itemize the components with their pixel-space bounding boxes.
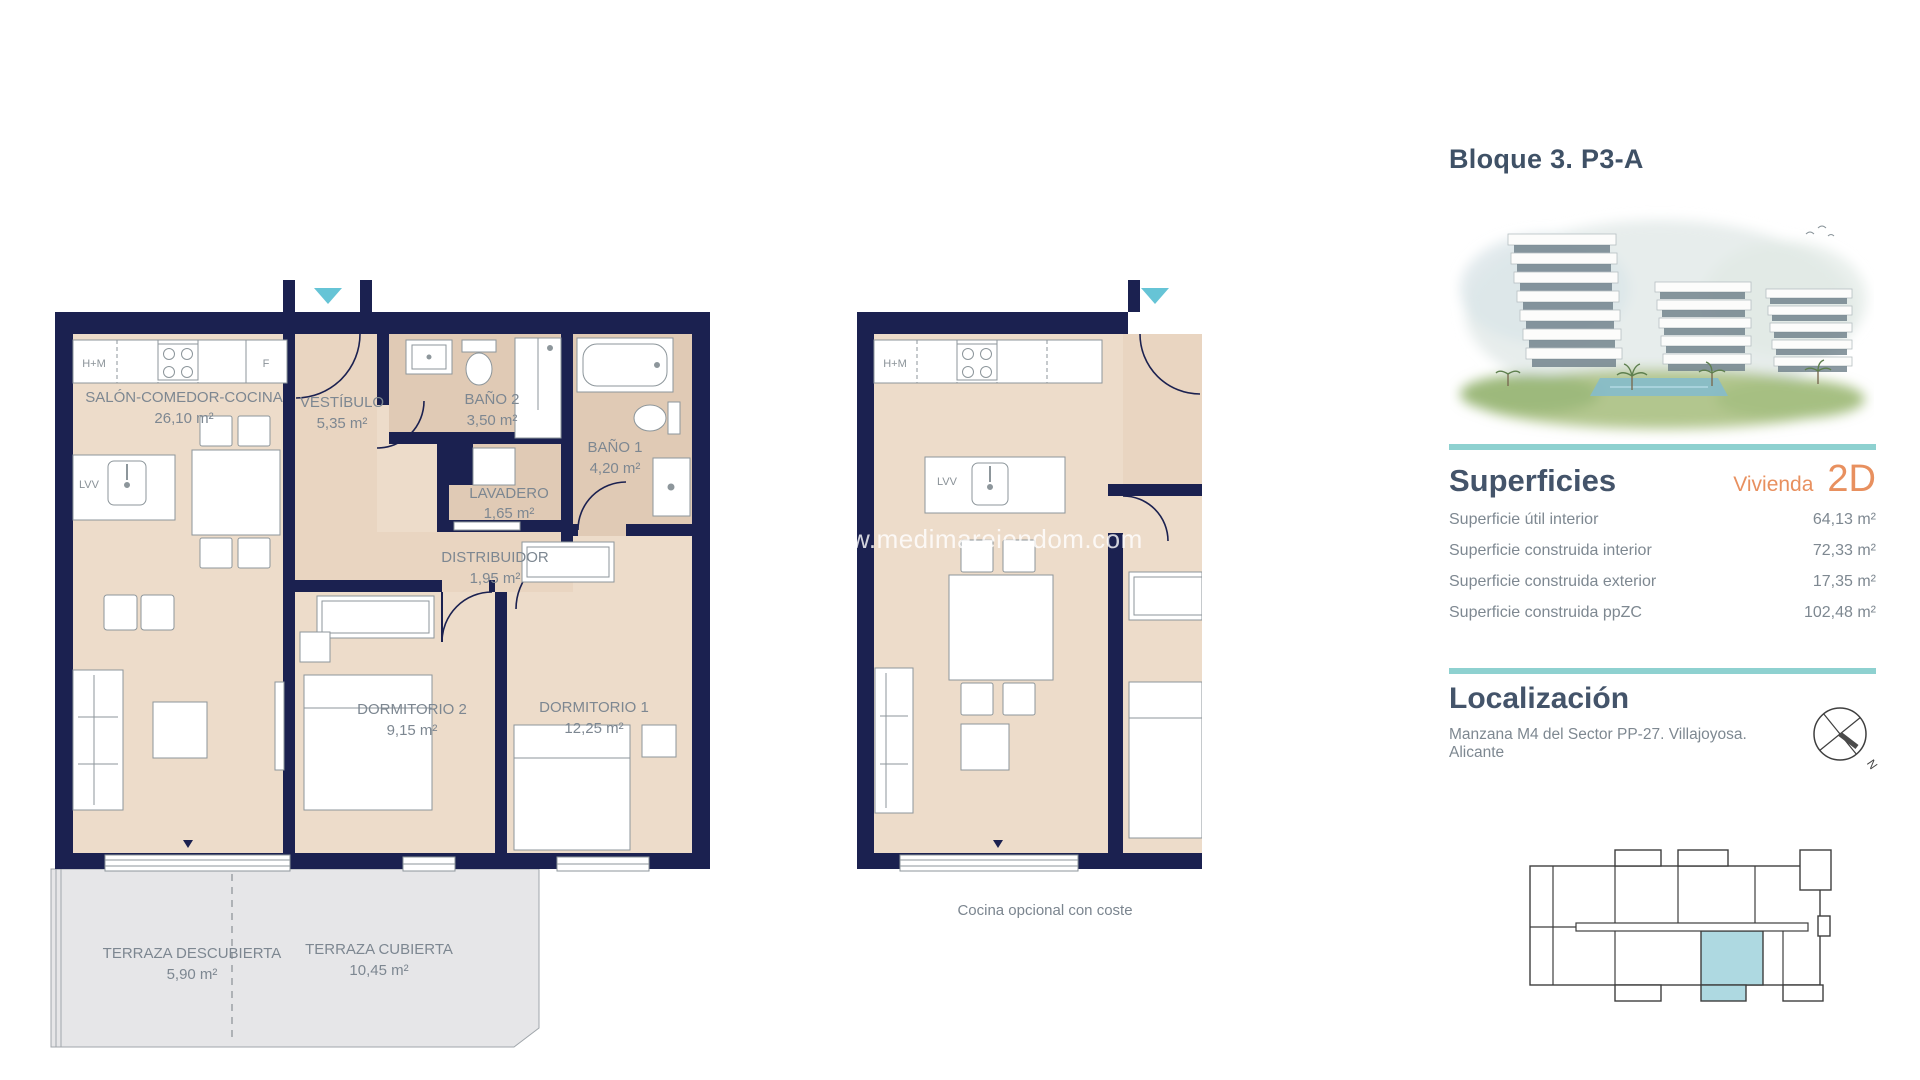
kitchen-label-hm: H+M xyxy=(883,358,907,370)
room-area-dorm1: 12,25 m² xyxy=(564,720,623,737)
row-value: 102,48 m² xyxy=(1804,604,1876,622)
room-label-distribuidor: DISTRIBUIDOR xyxy=(441,549,549,566)
entrance-arrow-icon xyxy=(1141,288,1169,304)
room-area-dorm2: 9,15 m² xyxy=(387,722,438,739)
row-label: Superficie construida interior xyxy=(1449,542,1652,560)
kitchen-label-lvv: LVV xyxy=(79,479,100,491)
row-label: Superficie construida exterior xyxy=(1449,573,1656,591)
block-title: Bloque 3. P3-A xyxy=(1449,144,1644,175)
table-row: Superficie construida ppZC 102,48 m² xyxy=(1449,597,1876,628)
room-area-bano1: 4,20 m² xyxy=(590,460,641,477)
compass-north-label: N xyxy=(1864,757,1880,772)
building-right xyxy=(1766,289,1852,372)
row-value: 17,35 m² xyxy=(1813,573,1876,591)
localizacion-address: Manzana M4 del Sector PP-27. Villajoyosa… xyxy=(1449,726,1804,762)
localizacion-heading: Localización xyxy=(1449,682,1629,716)
entrance-arrow-icon xyxy=(314,288,342,304)
building-center xyxy=(1655,282,1751,371)
row-label: Superficie construida ppZC xyxy=(1449,604,1642,622)
room-area-terraza-cub: 10,45 m² xyxy=(349,962,408,979)
room-label-terraza-cub: TERRAZA CUBIERTA xyxy=(305,941,453,958)
superficies-table: Superficie útil interior 64,13 m² Superf… xyxy=(1449,504,1876,628)
floorplan-optional-kitchen: H+M LVV xyxy=(857,280,1202,1060)
row-label: Superficie útil interior xyxy=(1449,511,1598,529)
room-label-dorm1: DORMITORIO 1 xyxy=(539,699,649,716)
vivienda-label: Vivienda xyxy=(1733,473,1813,497)
corridor xyxy=(1576,923,1808,931)
kitchen-label-f: F xyxy=(263,358,270,370)
kitchen-label-hm: H+M xyxy=(82,358,106,370)
room-label-bano2: BAÑO 2 xyxy=(464,391,519,408)
page: SALÓN-COMEDOR-COCINA 26,10 m² VESTÍBULO … xyxy=(0,0,1920,1080)
room-area-salon: 26,10 m² xyxy=(154,410,213,427)
room-label-vestibulo: VESTÍBULO xyxy=(300,394,384,411)
compass-icon: N xyxy=(1808,700,1886,778)
table-row: Superficie construida interior 72,33 m² xyxy=(1449,535,1876,566)
room-label-terraza-desc: TERRAZA DESCUBIERTA xyxy=(103,945,282,962)
teal-divider xyxy=(1449,668,1876,674)
room-label-salon: SALÓN-COMEDOR-COCINA xyxy=(85,389,283,406)
row-value: 64,13 m² xyxy=(1813,511,1876,529)
watermark: w.medimareiendom.com xyxy=(851,524,1143,555)
highlighted-unit[interactable] xyxy=(1701,931,1763,1001)
teal-divider xyxy=(1449,444,1876,450)
room-area-vestibulo: 5,35 m² xyxy=(317,415,368,432)
optional-plan-caption: Cocina opcional con coste xyxy=(905,902,1185,919)
superficies-heading: Superficies xyxy=(1449,463,1616,499)
room-label-lavadero: LAVADERO xyxy=(469,485,548,502)
floorplan-main: SALÓN-COMEDOR-COCINA 26,10 m² VESTÍBULO … xyxy=(42,280,722,1060)
unit-code: 2D xyxy=(1827,458,1876,501)
room-area-lavadero: 1,65 m² xyxy=(484,505,535,522)
kitchen-label-lvv: LVV xyxy=(937,476,958,488)
row-value: 72,33 m² xyxy=(1813,542,1876,560)
superficies-header: Superficies Vivienda 2D xyxy=(1449,458,1876,501)
room-area-bano2: 3,50 m² xyxy=(467,412,518,429)
room-area-distribuidor: 1,95 m² xyxy=(470,570,521,587)
building-rendering-image xyxy=(1450,194,1874,440)
birds xyxy=(1806,226,1834,236)
room-label-dorm2: DORMITORIO 2 xyxy=(357,701,467,718)
room-area-terraza-desc: 5,90 m² xyxy=(167,966,218,983)
table-row: Superficie útil interior 64,13 m² xyxy=(1449,504,1876,535)
table-row: Superficie construida exterior 17,35 m² xyxy=(1449,566,1876,597)
room-label-bano1: BAÑO 1 xyxy=(587,439,642,456)
siteplan-diagram xyxy=(1526,843,1906,1013)
